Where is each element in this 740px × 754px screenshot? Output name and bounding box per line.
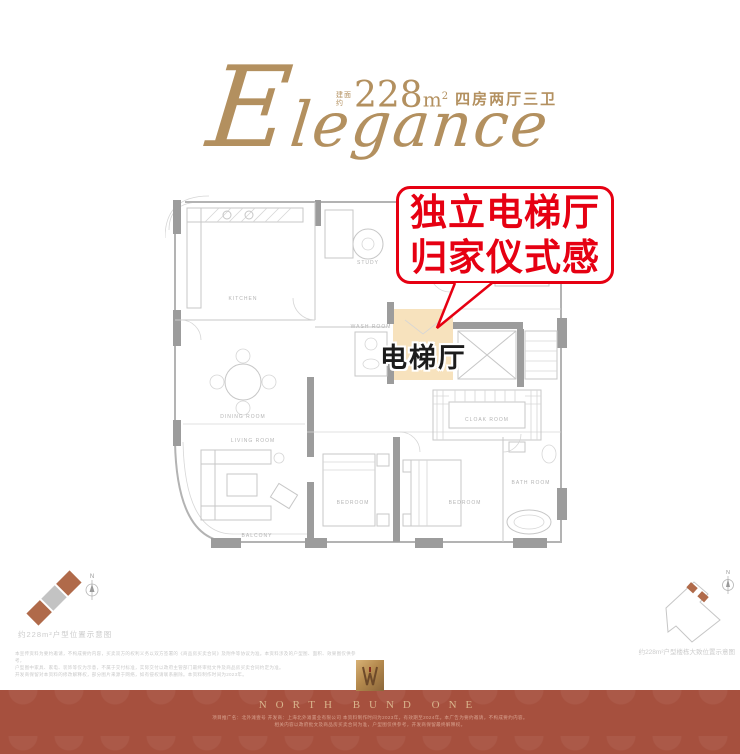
area-prefix: 建面 约	[336, 92, 352, 108]
compass-left-icon: N	[86, 574, 98, 600]
callout-line-1: 独立电梯厅	[410, 190, 600, 235]
dining-fixtures	[210, 349, 276, 415]
svg-text:N: N	[726, 570, 730, 576]
area-unit-sup: 2	[442, 91, 448, 102]
brand-name: NORTH BUND ONE	[0, 699, 740, 711]
area-prefix-top: 建面	[336, 92, 352, 100]
room-label: BEDROOM	[337, 500, 370, 506]
floor-plate-caption: 约228m²户型楼栋大致位置示意图	[633, 646, 735, 656]
room-label: BEDROOM	[449, 500, 482, 506]
callout-tail	[420, 279, 510, 335]
room-label: BATH ROOM	[512, 480, 551, 486]
master-bedroom-fixtures	[403, 460, 461, 526]
study-fixtures	[325, 210, 383, 259]
footer-notes: 项目推广名：北外滩壹号 开发商：上海北外滩置业有限公司 本资料制作时间为2023…	[70, 715, 670, 728]
bathroom-fixtures	[507, 442, 556, 534]
area-prefix-bottom: 约	[336, 100, 352, 108]
area-spec-line: 建面 约 228 m2 四房两厅三卫	[336, 80, 557, 112]
callout-bubble: 独立电梯厅 归家仪式感	[396, 186, 614, 284]
cloakroom-fixtures	[433, 390, 541, 440]
room-label: LIVING ROOM	[231, 438, 275, 444]
callout-line-2: 归家仪式感	[410, 235, 600, 280]
floor-plate-icon: N	[648, 566, 740, 644]
kitchen-fixtures	[187, 208, 303, 308]
area-unit: m2	[423, 85, 448, 112]
living-fixtures	[201, 450, 298, 520]
layout-spec-text: 四房两厅三卫	[455, 88, 557, 109]
elevator-shaft	[458, 331, 557, 379]
poster-page: { "colors": { "accent_red": "#e60012", "…	[0, 0, 740, 754]
room-label: DINING ROOM	[220, 414, 265, 420]
compass-right-icon: N	[723, 570, 734, 594]
room-label: WASH ROOM	[351, 324, 392, 330]
room-label: CLOAK ROOM	[465, 417, 509, 423]
disclaimer: 本宣传资料为要约邀请，不构成要约内容，买卖双方的权利义务以双方签署的《商品房买卖…	[15, 650, 360, 678]
site-plan-caption: 约228m²户型位置示意图	[18, 629, 112, 640]
room-label: STUDY	[357, 260, 379, 266]
elevator-hall-label: 电梯厅	[380, 336, 467, 375]
site-plan-icon: N	[16, 568, 116, 628]
brand-monogram-icon	[360, 665, 380, 687]
bedroom2-fixtures	[323, 454, 389, 526]
brand-logo	[356, 660, 384, 691]
room-label: KITCHEN	[229, 296, 258, 302]
room-label: BALCONY	[242, 533, 273, 539]
area-value: 228	[354, 80, 423, 112]
svg-text:N: N	[90, 574, 94, 580]
